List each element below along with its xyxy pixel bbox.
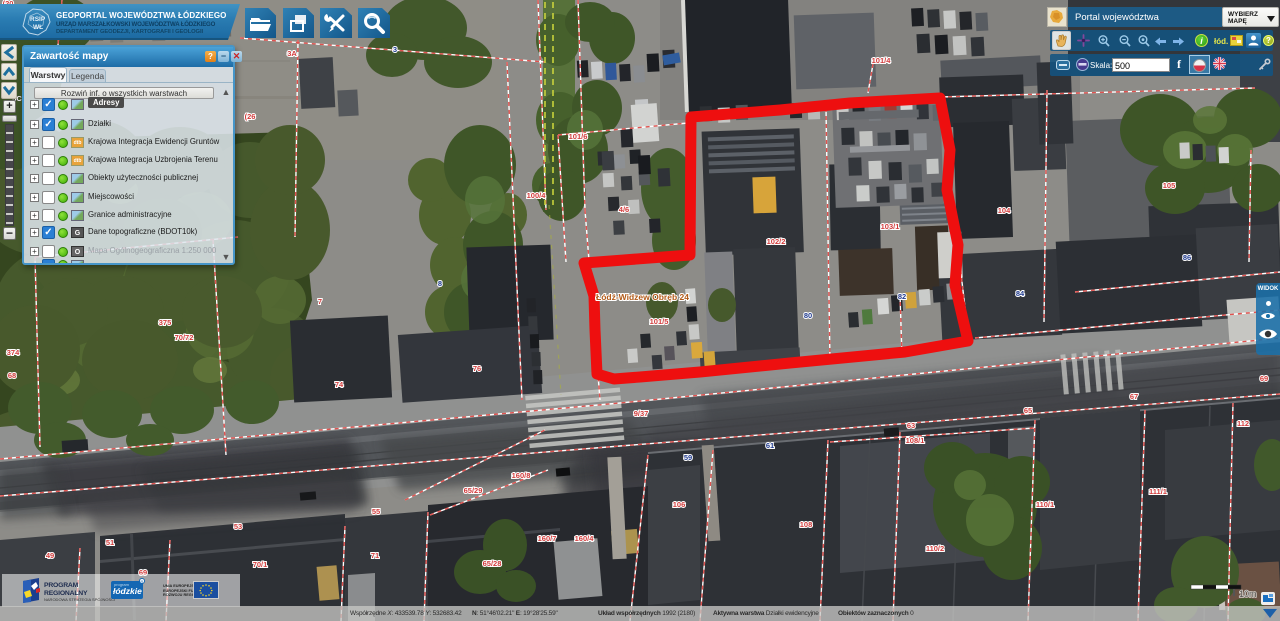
svg-text:101/4: 101/4 — [872, 56, 892, 65]
svg-text:86: 86 — [1183, 253, 1191, 262]
svg-text:374: 374 — [7, 348, 20, 357]
svg-text:(26: (26 — [245, 112, 256, 121]
svg-text:65/28: 65/28 — [483, 559, 502, 568]
svg-text:70/72: 70/72 — [175, 333, 194, 342]
svg-text:68: 68 — [8, 371, 16, 380]
svg-text:160/4: 160/4 — [575, 534, 595, 543]
svg-text:110/1: 110/1 — [1036, 500, 1054, 509]
svg-text:100/4: 100/4 — [527, 191, 547, 200]
svg-text:RSIP: RSIP — [30, 16, 46, 23]
svg-text:74: 74 — [335, 380, 344, 389]
svg-text:59: 59 — [684, 453, 692, 462]
svg-text:53: 53 — [234, 522, 242, 531]
svg-text:WŁ: WŁ — [33, 24, 43, 31]
svg-text:101/5: 101/5 — [650, 317, 669, 326]
svg-text:7: 7 — [318, 297, 322, 306]
svg-text:106: 106 — [673, 500, 686, 509]
svg-text:84: 84 — [1016, 289, 1025, 298]
svg-text:110/2: 110/2 — [926, 544, 944, 553]
svg-text:3A: 3A — [287, 49, 297, 58]
svg-text:105: 105 — [1163, 181, 1176, 190]
svg-text:69: 69 — [1260, 374, 1268, 383]
svg-text:65/29: 65/29 — [464, 486, 483, 495]
svg-text:4/6: 4/6 — [619, 205, 629, 214]
svg-text:67: 67 — [1130, 392, 1138, 401]
svg-text:10m: 10m — [1239, 589, 1257, 599]
svg-text:111/1: 111/1 — [1149, 487, 1167, 496]
svg-text:375: 375 — [159, 318, 172, 327]
svg-text:70/1: 70/1 — [253, 560, 268, 569]
svg-text:51: 51 — [106, 538, 114, 547]
svg-text:65: 65 — [1024, 406, 1032, 415]
svg-text:8: 8 — [438, 279, 442, 288]
svg-text:160/7: 160/7 — [538, 534, 557, 543]
svg-text:108: 108 — [800, 520, 813, 529]
svg-text:104: 104 — [998, 206, 1011, 215]
svg-text:112: 112 — [1237, 419, 1249, 428]
svg-text:103/1: 103/1 — [881, 222, 900, 231]
svg-text:61: 61 — [766, 441, 774, 450]
svg-text:9/37: 9/37 — [634, 409, 649, 418]
svg-text:Łódź-Widzew Obręb 24: Łódź-Widzew Obręb 24 — [596, 292, 689, 302]
svg-text:102/2: 102/2 — [767, 237, 786, 246]
svg-text:160/8: 160/8 — [512, 471, 531, 480]
svg-text:55: 55 — [372, 507, 380, 516]
svg-text:71: 71 — [371, 551, 379, 560]
svg-text:49: 49 — [46, 551, 54, 560]
svg-text:3: 3 — [393, 45, 397, 54]
svg-text:101/6: 101/6 — [569, 132, 588, 141]
svg-text:108/1: 108/1 — [906, 436, 925, 445]
svg-text:76: 76 — [473, 364, 481, 373]
svg-text:63: 63 — [907, 421, 915, 430]
svg-text:82: 82 — [898, 292, 906, 301]
svg-text:80: 80 — [804, 311, 812, 320]
